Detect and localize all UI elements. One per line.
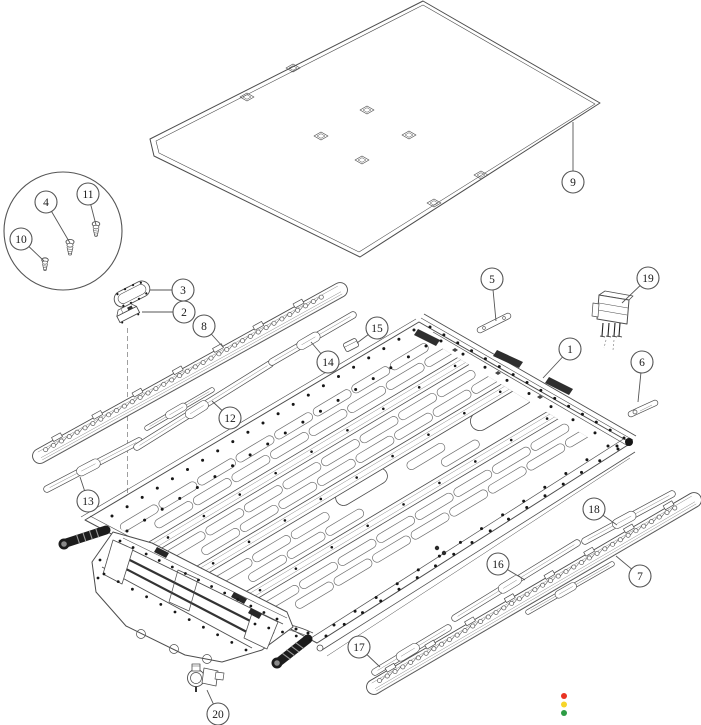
callout-14: 14	[311, 342, 339, 373]
callout-label-6: 6	[639, 357, 645, 369]
callout-label-4: 4	[43, 197, 49, 209]
callout-10: 10	[10, 228, 44, 261]
top-cover-panel	[150, 1, 600, 257]
callout-9: 9	[562, 122, 584, 193]
callout-3: 3	[150, 279, 194, 301]
callout-label-7: 7	[637, 571, 643, 583]
callout-label-2: 2	[181, 307, 187, 319]
exploded-view-page: 9104113281213141551916161718720	[0, 0, 701, 725]
callout-label-9: 9	[570, 177, 576, 189]
callout-label-5: 5	[489, 274, 495, 286]
status-dot-red	[561, 693, 567, 699]
callout-8: 8	[193, 315, 223, 347]
callout-6: 6	[631, 351, 653, 402]
callout-2: 2	[142, 301, 195, 323]
callout-label-10: 10	[15, 234, 27, 246]
callout-label-17: 17	[353, 642, 365, 654]
vent-valve-part	[188, 664, 225, 692]
callout-5: 5	[481, 268, 503, 321]
callout-11: 11	[77, 183, 99, 225]
callout-12: 12	[212, 401, 241, 429]
status-dots	[561, 693, 567, 716]
callout-13: 13	[77, 477, 99, 512]
callout-label-1: 1	[567, 344, 573, 356]
callout-label-20: 20	[212, 709, 224, 721]
callout-17: 17	[348, 636, 380, 667]
callout-label-14: 14	[322, 357, 334, 369]
callout-4: 4	[35, 191, 70, 243]
callout-label-11: 11	[82, 189, 93, 201]
callout-label-3: 3	[180, 285, 186, 297]
status-dot-yellow	[561, 702, 567, 708]
exploded-view-diagram: 9104113281213141551916161718720	[0, 0, 701, 725]
callout-19: 19	[622, 267, 659, 303]
callout-label-16: 16	[492, 559, 504, 571]
callout-label-8: 8	[201, 321, 207, 333]
callout-label-19: 19	[642, 273, 654, 285]
callout-18: 18	[583, 498, 617, 525]
status-dot-green	[561, 710, 567, 716]
callout-20: 20	[207, 690, 229, 725]
callout-label-18: 18	[588, 504, 600, 516]
callout-label-15: 15	[371, 323, 383, 335]
callout-7: 7	[616, 556, 651, 587]
callout-label-13: 13	[82, 496, 94, 508]
callout-label-12: 12	[224, 413, 236, 425]
callout-1: 1	[543, 338, 581, 378]
callout-15: 15	[357, 317, 388, 343]
